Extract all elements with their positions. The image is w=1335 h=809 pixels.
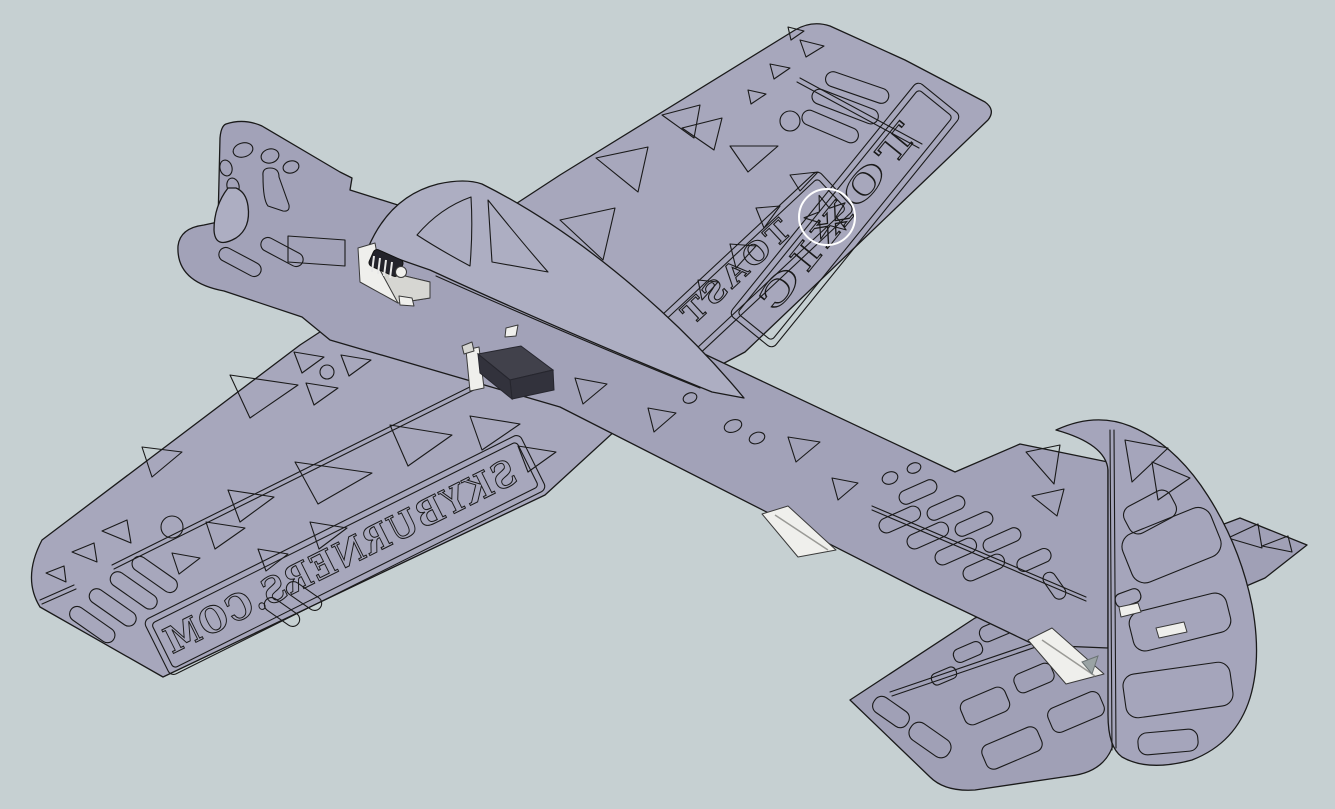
cad-viewport[interactable]: SKYBURNERS.COM TOXIC TOAST (0, 0, 1335, 809)
model-canvas[interactable]: SKYBURNERS.COM TOXIC TOAST (0, 0, 1335, 809)
prop-adapter (396, 267, 407, 278)
